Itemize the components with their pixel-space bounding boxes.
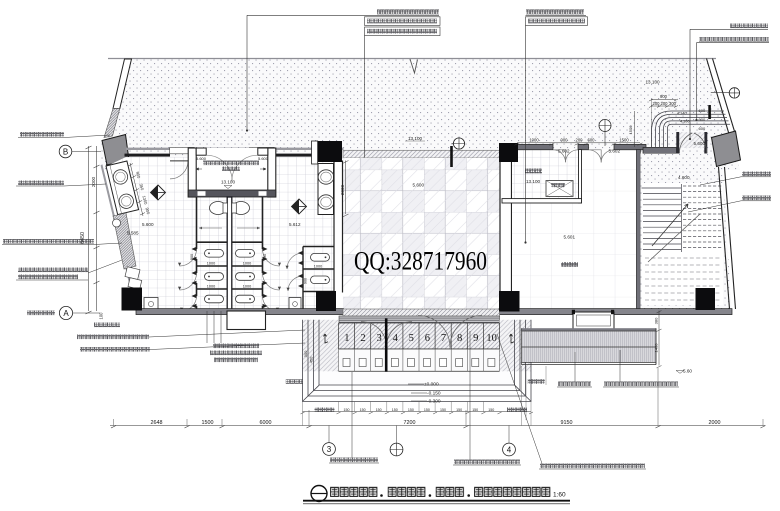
svg-text:4.140: 4.140 xyxy=(677,112,687,116)
svg-text:2000: 2000 xyxy=(91,176,96,187)
svg-text:4: 4 xyxy=(507,446,512,455)
svg-text:1000: 1000 xyxy=(207,285,215,289)
svg-text:600: 600 xyxy=(699,126,706,131)
svg-text:5.585: 5.585 xyxy=(127,231,139,236)
svg-text:1000: 1000 xyxy=(243,285,251,289)
svg-text:6000: 6000 xyxy=(260,420,272,426)
svg-text:3: 3 xyxy=(327,445,332,454)
svg-text:100: 100 xyxy=(99,312,104,320)
svg-text:2000: 2000 xyxy=(709,420,721,426)
svg-text:150: 150 xyxy=(440,408,446,412)
svg-text:1000: 1000 xyxy=(529,138,539,143)
svg-text:200: 200 xyxy=(661,101,669,106)
svg-text:QQ:328717960: QQ:328717960 xyxy=(354,246,487,276)
svg-text:5.601: 5.601 xyxy=(564,235,576,240)
svg-text:300: 300 xyxy=(669,101,677,106)
svg-text:150: 150 xyxy=(360,408,366,412)
svg-text:150: 150 xyxy=(456,408,462,412)
svg-text:2000: 2000 xyxy=(340,184,345,195)
svg-text:1000: 1000 xyxy=(207,262,215,266)
svg-text:150: 150 xyxy=(392,408,398,412)
svg-text:7200: 7200 xyxy=(404,420,416,426)
svg-text:300: 300 xyxy=(303,350,308,357)
svg-text:5.600: 5.600 xyxy=(196,156,207,161)
svg-text:8: 8 xyxy=(457,333,462,344)
svg-text:5.602: 5.602 xyxy=(609,149,621,154)
svg-text:2: 2 xyxy=(360,333,365,344)
svg-text:4: 4 xyxy=(393,333,399,344)
svg-text:5.612: 5.612 xyxy=(289,222,301,227)
svg-text:13.100: 13.100 xyxy=(408,136,422,141)
svg-text:1500: 1500 xyxy=(202,420,214,426)
svg-text:5.60: 5.60 xyxy=(683,369,692,374)
svg-text:600: 600 xyxy=(699,108,706,113)
svg-text:-0.300: -0.300 xyxy=(427,399,441,405)
svg-text:4.100: 4.100 xyxy=(680,120,690,124)
svg-text:1400: 1400 xyxy=(654,343,659,353)
svg-text:200: 200 xyxy=(653,101,661,106)
svg-text:6: 6 xyxy=(425,333,430,344)
svg-text:900: 900 xyxy=(304,278,308,284)
svg-text:B: B xyxy=(63,147,68,156)
svg-text:450: 450 xyxy=(309,356,314,363)
svg-text:13.100: 13.100 xyxy=(526,179,540,184)
svg-text:-0.150: -0.150 xyxy=(427,391,441,397)
svg-text:6450: 6450 xyxy=(80,232,86,244)
svg-text:150: 150 xyxy=(344,408,350,412)
svg-text:9150: 9150 xyxy=(561,420,573,426)
svg-text:1000: 1000 xyxy=(243,262,251,266)
svg-text:7: 7 xyxy=(441,333,446,344)
svg-text:4.600: 4.600 xyxy=(678,175,690,180)
svg-text:10: 10 xyxy=(486,333,497,344)
svg-text:150: 150 xyxy=(488,408,494,412)
svg-text:1500: 1500 xyxy=(619,138,629,143)
svg-text:380: 380 xyxy=(654,317,659,324)
svg-text:1: 1 xyxy=(344,333,349,344)
svg-text:±0.000: ±0.000 xyxy=(424,382,439,388)
svg-text:3: 3 xyxy=(376,333,381,344)
svg-text:150: 150 xyxy=(472,408,478,412)
svg-text:900: 900 xyxy=(561,138,569,143)
svg-text:5.600: 5.600 xyxy=(413,183,425,188)
svg-text:600: 600 xyxy=(699,117,706,122)
svg-text:5.600: 5.600 xyxy=(142,222,154,227)
svg-text:A: A xyxy=(63,309,69,318)
svg-text:9: 9 xyxy=(473,333,478,344)
svg-text:1:60: 1:60 xyxy=(553,492,566,499)
svg-text:200: 200 xyxy=(576,138,584,143)
svg-text:150: 150 xyxy=(424,408,430,412)
svg-text:1500: 1500 xyxy=(628,125,633,135)
svg-text:13.100: 13.100 xyxy=(221,180,235,185)
svg-text:5.602: 5.602 xyxy=(558,149,570,154)
svg-text:1000: 1000 xyxy=(314,265,322,269)
svg-text:5.600: 5.600 xyxy=(258,156,269,161)
svg-text:13.100: 13.100 xyxy=(646,80,660,85)
svg-text:5: 5 xyxy=(409,333,414,344)
svg-text:150: 150 xyxy=(376,408,382,412)
svg-text:2648: 2648 xyxy=(151,420,163,426)
svg-text:150: 150 xyxy=(408,408,414,412)
svg-text:900: 900 xyxy=(660,94,668,99)
svg-text:600: 600 xyxy=(588,138,596,143)
svg-text:5.600: 5.600 xyxy=(694,141,706,146)
